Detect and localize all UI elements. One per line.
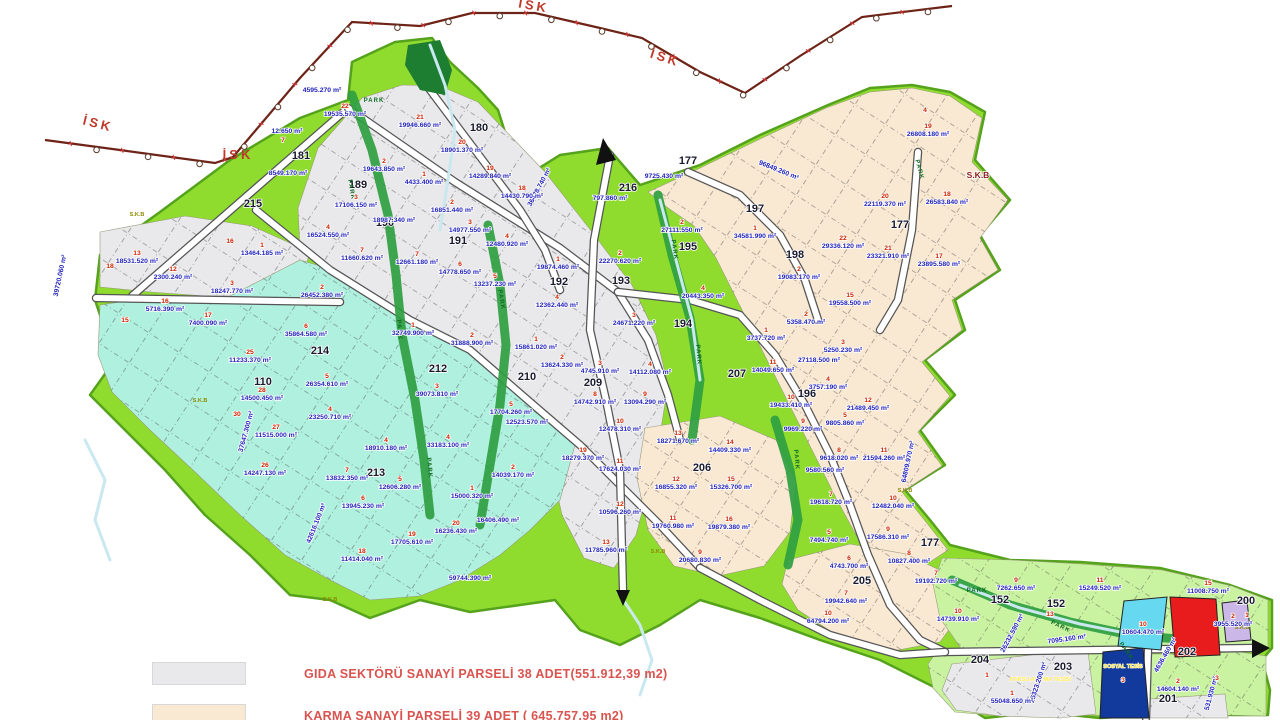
- parcel-number: 2: [680, 219, 684, 226]
- parcel-number: 5: [827, 529, 831, 536]
- parcel-area: 19879.380 m²: [708, 524, 751, 531]
- zone-number-label: 195: [679, 241, 697, 253]
- parcel-number: 1: [1245, 612, 1249, 619]
- zone-number-label: 206: [693, 462, 711, 474]
- parcel-area: 19942.640 m²: [825, 598, 868, 605]
- parcel-number: 1: [753, 225, 757, 232]
- parcel-number: 21: [416, 114, 424, 121]
- isk-tick-o: [784, 65, 790, 71]
- parcel-area: 23321.910 m²: [867, 253, 910, 260]
- parcel-number: 2: [450, 199, 454, 206]
- isk-tick-o: [599, 29, 605, 35]
- edge-measure-label: 4595.270 m²: [303, 87, 342, 94]
- parcel-area: 19433.410 m²: [770, 402, 813, 409]
- zone-number-label: 180: [470, 122, 488, 134]
- zone-number-label: 194: [674, 318, 693, 330]
- parcel-area: 26583.840 m²: [926, 199, 969, 206]
- zone-number-label: 213: [367, 467, 385, 479]
- parcel-area: 14739.910 m²: [937, 616, 980, 623]
- parcel-area: 19192.720 m²: [915, 578, 958, 585]
- parcel-number: 13: [133, 250, 141, 257]
- parcel-number: 13: [1046, 611, 1054, 618]
- parcel-area: 23250.710 m²: [309, 414, 352, 421]
- parcel-area: 16236.430 m²: [435, 528, 478, 535]
- parcel-number: 4: [826, 376, 830, 383]
- skb-small-label: S.K.B: [130, 212, 145, 218]
- parcel-area: 34581.990 m²: [734, 233, 777, 240]
- zoning-map-page: ×××××××××××××××××××İSKİSKİSKİSK181189180…: [0, 0, 1280, 720]
- zone-number-label: 201: [1159, 693, 1177, 705]
- parcel-area: 4743.700 m²: [830, 563, 869, 570]
- parcel-area: 14289.840 m²: [469, 173, 512, 180]
- parcel-area: 18279.370 m²: [562, 455, 605, 462]
- parcel-number: 19: [486, 165, 494, 172]
- parcel-area: 12661.180 m²: [396, 259, 439, 266]
- parcel-number: 2: [618, 250, 622, 257]
- parcel-number: 11: [880, 447, 887, 454]
- parcel-area: 11233.370 m²: [229, 357, 272, 364]
- parcel-area: 19946.660 m²: [399, 122, 442, 129]
- parcel-number: 20: [458, 139, 466, 146]
- parcel-number: 3: [435, 383, 439, 390]
- parcel-number: 2: [804, 311, 808, 318]
- parcel-number: 14: [726, 439, 734, 446]
- parcel-area: 18901.370 m²: [441, 147, 484, 154]
- parcel-number: 2: [1176, 678, 1180, 685]
- parcel-area: 18247.770 m²: [211, 288, 254, 295]
- parcel-number: 11: [1096, 577, 1103, 584]
- parcel-number: 22: [839, 235, 847, 242]
- parcel-number: 30: [233, 411, 241, 418]
- parcel-number: 26: [261, 462, 269, 469]
- parcel-number: 20: [881, 193, 889, 200]
- parcel-area: 10596.260 m²: [599, 509, 642, 516]
- parcel-number: 11: [669, 515, 676, 522]
- parcel-area: 7262.650 m²: [997, 585, 1036, 592]
- zone-number-label: 204: [971, 654, 990, 666]
- parcel-number: 3: [1215, 675, 1219, 682]
- parcel-area: 39073.810 m²: [416, 391, 459, 398]
- parcel-number: 1: [534, 336, 538, 343]
- parcel-area: 19643.850 m²: [363, 166, 406, 173]
- isk-tick-o: [446, 19, 452, 25]
- parcel-area: 17705.610 m²: [391, 539, 434, 546]
- isk-tick-o: [925, 9, 931, 15]
- parcel-area: 3737.720 m²: [747, 335, 786, 342]
- isk-tick-o: [145, 154, 151, 160]
- edge-measure-label: 59744.390 m²: [449, 575, 492, 582]
- parcel-area: 24671.220 m²: [613, 320, 656, 327]
- parcel-area: 4745.910 m²: [581, 368, 620, 375]
- parcel-number: 16: [226, 238, 234, 245]
- isk-label: İSK: [223, 147, 254, 162]
- parcel-area: 12480.920 m²: [486, 241, 529, 248]
- parcel-area: 13832.350 m²: [326, 475, 369, 482]
- isk-tick-o: [549, 17, 555, 23]
- parcel-area: 5250.230 m²: [824, 347, 863, 354]
- parcel-area: 9618.020 m²: [820, 455, 859, 462]
- edge-measure-label: 8549.170 m²: [269, 170, 308, 177]
- parcel-area: 15326.700 m²: [710, 484, 753, 491]
- parcel-number: 16: [161, 298, 169, 305]
- parcel-number: 4: [923, 107, 927, 114]
- zone-number-label: 177: [891, 219, 909, 231]
- zone-number-label: 192: [550, 276, 568, 288]
- parcel-area: 12362.440 m²: [536, 302, 579, 309]
- isk-tick-x: ×: [420, 20, 426, 30]
- skb-small-label: S.K.B: [651, 549, 666, 555]
- zone-number-label: 209: [584, 377, 602, 389]
- parcel-area: 14409.330 m²: [709, 447, 752, 454]
- isk-tick-o: [740, 92, 746, 98]
- parcel-area: 21489.450 m²: [847, 405, 890, 412]
- isk-tick-o: [874, 15, 880, 21]
- parcel-area: 19558.500 m²: [829, 300, 872, 307]
- parcel-area: 17704.260 m²: [490, 409, 533, 416]
- parcel-area: 32749.900 m²: [392, 330, 435, 337]
- stream: [85, 440, 110, 560]
- parcel-number: 11: [616, 458, 623, 465]
- park-label: PARK: [364, 98, 385, 104]
- zone-number-label: 207: [728, 368, 746, 380]
- parcel-area: 23895.580 m²: [918, 261, 961, 268]
- parcel-number: 4: [555, 294, 559, 301]
- parcel-number: 19: [579, 447, 587, 454]
- parcel-area: 33183.100 m²: [427, 442, 470, 449]
- parcel-number: 9: [698, 549, 702, 556]
- parcel-area: 11008.750 m²: [1187, 588, 1230, 595]
- parcel-area: 14778.650 m²: [439, 269, 482, 276]
- parcel-number: 7: [415, 251, 419, 258]
- parcel-number: 22: [341, 103, 349, 110]
- parcel-number: 1: [764, 327, 768, 334]
- parcel-area: 13624.330 m²: [541, 362, 584, 369]
- parcel-number: 4: [701, 285, 705, 292]
- parcel-area: 14500.450 m²: [241, 395, 284, 402]
- isk-tick-o: [395, 25, 401, 31]
- parcel-area: 19874.460 m²: [537, 264, 580, 271]
- parcel-number: 18: [358, 548, 366, 555]
- parcel-number: 3: [632, 312, 636, 319]
- parcel-number: 10: [889, 495, 897, 502]
- zone-number-label: 200: [1237, 595, 1255, 607]
- parcel-area: 7494.740 m²: [810, 537, 849, 544]
- parcel-number: 19: [408, 531, 416, 538]
- parcel-area: 14112.080 m²: [629, 369, 672, 376]
- parcel-area: 18271.670 m²: [657, 438, 700, 445]
- parcel-number: 15: [727, 476, 735, 483]
- isk-tick-o: [497, 13, 503, 19]
- parcel-area: 4433.400 m²: [405, 179, 444, 186]
- park-label: PARK: [967, 588, 988, 594]
- parcel-number: 8: [907, 550, 911, 557]
- parcel-area: 13464.185 m²: [241, 250, 284, 257]
- parcel-number: 6: [847, 555, 851, 562]
- parcel-number: 6: [361, 495, 365, 502]
- parcel-number: 7: [934, 570, 938, 577]
- parcel-number: 17: [935, 253, 943, 260]
- zone-number-label: 210: [518, 371, 536, 383]
- parcel-number: 10: [954, 608, 962, 615]
- parcel-number: 7: [360, 247, 364, 254]
- skb-small-label: S.K.B: [323, 597, 338, 603]
- parcel-area: 11414.040 m²: [341, 556, 384, 563]
- parcel-area: 14039.170 m²: [492, 472, 535, 479]
- isk-tick-x: ×: [761, 74, 769, 85]
- parcel-area: 14977.550 m²: [449, 227, 492, 234]
- parcel-area: 19535.570 m²: [324, 111, 367, 118]
- parcel-number: 2: [797, 266, 801, 273]
- zone-number-label: 212: [429, 363, 447, 375]
- parcel-area: 22270.620 m²: [599, 258, 642, 265]
- zone-number-label: 181: [292, 150, 310, 162]
- parcel-number: 18: [943, 191, 951, 198]
- isk-tick-x: ×: [804, 45, 812, 56]
- zoning-map-canvas: ×××××××××××××××××××İSKİSKİSKİSK181189180…: [0, 0, 1280, 720]
- parcel-area: 12482.040 m²: [872, 503, 915, 510]
- zone-number-label: 197: [746, 203, 764, 215]
- parcel-area: 14430.790 m²: [501, 193, 544, 200]
- parcel-number: 5: [325, 373, 329, 380]
- skb-small-label: S.K.B: [193, 398, 208, 404]
- parcel-area: 9805.860 m²: [826, 420, 865, 427]
- parcel-area: 3955.520 m²: [1214, 621, 1253, 628]
- parcel-number: 3: [841, 339, 845, 346]
- parcel-number: 3: [468, 219, 472, 226]
- parcel-area: 14604.140 m²: [1157, 686, 1200, 693]
- isk-tick-o: [197, 161, 203, 167]
- parcel-number: 11: [769, 359, 776, 366]
- parcel-number: 12: [616, 501, 624, 508]
- parcel-number: 6: [304, 323, 308, 330]
- isk-tick-o: [693, 70, 699, 76]
- parcel-area: 15000.320 m²: [451, 493, 494, 500]
- zone-number-label: 198: [786, 249, 804, 261]
- parcel-number: 4: [328, 406, 332, 413]
- parcel-number: 9: [643, 391, 647, 398]
- parcel-number: 1: [411, 322, 415, 329]
- parcel-area: 18987.340 m²: [373, 217, 416, 224]
- parcel-number: 1: [260, 242, 264, 249]
- parcel-number: 7: [345, 467, 349, 474]
- parcel-area: 13945.230 m²: [342, 503, 385, 510]
- parcel-area: 17586.310 m²: [867, 534, 910, 541]
- parcel-area: 13237.230 m²: [474, 281, 517, 288]
- parcel-area: 14049.650 m²: [752, 367, 795, 374]
- parcel-number: 4: [648, 361, 652, 368]
- parcel-area: 2300.240 m²: [154, 274, 193, 281]
- parcel-area: 12523.570 m²: [506, 419, 549, 426]
- parcel-area: 26354.610 m²: [306, 381, 349, 388]
- parcel-number: 4: [326, 224, 330, 231]
- zone-number-label: 152: [1047, 598, 1065, 610]
- isk-tick-x: ×: [848, 18, 856, 29]
- parcel-number: 12: [169, 266, 177, 273]
- parcel-area: 20443.350 m²: [682, 293, 725, 300]
- parcel-number: 28: [258, 387, 266, 394]
- parcel-number: 1: [1010, 690, 1014, 697]
- parcel-area: 35864.580 m²: [285, 331, 328, 338]
- parcel-number: 2: [560, 354, 564, 361]
- skb-label: S.K.B: [967, 170, 990, 180]
- parcel-area: 14247.130 m²: [244, 470, 287, 477]
- edge-measure-label: 39720.060 m²: [53, 254, 69, 298]
- skb-small-label: S.K.B: [898, 488, 913, 494]
- special-facility-label: SOSYAL TESİS: [1103, 663, 1143, 670]
- parcel-area: 22119.370 m²: [864, 201, 907, 208]
- parcel-area: 5716.390 m²: [146, 306, 185, 313]
- parcel-number: 16: [725, 516, 733, 523]
- parcel-area: 27118.500 m²: [798, 357, 841, 364]
- isk-label: İSK: [648, 46, 682, 70]
- parcel-number: 17: [204, 312, 212, 319]
- parcel-number: 19: [924, 123, 932, 130]
- parcel-area: 9580.560 m²: [806, 467, 845, 474]
- parcel-area: 14742.910 m²: [574, 399, 617, 406]
- zone-number-label: 214: [311, 345, 330, 357]
- parcel-number: 2: [320, 284, 324, 291]
- parcel-number: 10: [1139, 621, 1147, 628]
- parcel-number: 25: [246, 349, 254, 356]
- isk-tick-x: ×: [714, 76, 725, 87]
- parcel-area: 9969.220 m²: [784, 426, 823, 433]
- parcel-number: 10: [616, 418, 624, 425]
- parcel-number: 5: [493, 273, 497, 280]
- parcel-area: 17624.030 m²: [599, 466, 642, 473]
- zone-number-label: 193: [612, 275, 630, 287]
- parcel-number: 12: [672, 476, 680, 483]
- zone-number-label: 191: [449, 235, 467, 247]
- parcel-area: 7400.090 m²: [189, 320, 228, 327]
- isk-tick-o: [309, 65, 315, 71]
- parcel-number: 18: [518, 185, 526, 192]
- parcel-number: 4: [384, 437, 388, 444]
- isk-tick-o: [94, 147, 100, 153]
- parcel-number: 9: [886, 526, 890, 533]
- parcel-area: 15249.520 m²: [1079, 585, 1122, 592]
- zone-number-label: 203: [1054, 661, 1072, 673]
- parcel-area: 12478.310 m²: [599, 426, 642, 433]
- parcel-number: 4: [505, 233, 509, 240]
- parcel-number: 15: [1204, 580, 1212, 587]
- parcel-area: 16855.320 m²: [655, 484, 698, 491]
- isk-label: İSK: [81, 113, 114, 135]
- edge-measure-label: 12.650 m²: [272, 128, 304, 135]
- parcel-area: 15861.020 m²: [515, 344, 558, 351]
- isk-tick-o: [275, 104, 281, 110]
- parcel-number: 13: [602, 539, 610, 546]
- parcel-number: 21: [884, 245, 892, 252]
- parcel-area: 5358.470 m²: [787, 319, 826, 326]
- edge-measure-label: 797.860 m²: [593, 195, 629, 202]
- parcel-area: 10827.400 m²: [888, 558, 931, 565]
- parcel-number: 3: [354, 194, 358, 201]
- parcel-number: 9: [1014, 577, 1018, 584]
- parcel-number: 7: [829, 491, 833, 498]
- parcel-area: 9725.430 m²: [645, 173, 684, 180]
- parcel-number: 12: [864, 397, 872, 404]
- parcel-area: 19618.720 m²: [810, 499, 853, 506]
- parcel-area: 16406.490 m²: [477, 517, 520, 524]
- parcel-number: 1: [422, 171, 426, 178]
- parcel-number: 10: [787, 394, 795, 401]
- parcel-area: 10604.470 m²: [1122, 629, 1165, 636]
- parcel-number: 27: [272, 424, 280, 431]
- parcel-number: 1: [985, 672, 989, 679]
- parcel-area: 17106.150 m²: [335, 202, 378, 209]
- parcel-number: 15: [846, 292, 854, 299]
- parcel-area: 16524.550 m²: [307, 232, 350, 239]
- isk-tick-o: [827, 37, 833, 43]
- parcel-area: 20680.830 m²: [679, 557, 722, 564]
- parcel-number: 7: [844, 590, 848, 597]
- zone-number-label: 152: [991, 594, 1009, 606]
- parcel-area: 26452.380 m²: [301, 292, 344, 299]
- parcel-number: 15: [121, 317, 129, 324]
- parcel-area: 18531.520 m²: [116, 258, 159, 265]
- parcel-area: 19083.170 m²: [778, 274, 821, 281]
- parcel-area: 11660.620 m²: [341, 255, 384, 262]
- parcel-number: 1: [556, 256, 560, 263]
- parcel-area: 11515.000 m²: [255, 432, 298, 439]
- zone-number-label: 216: [619, 182, 637, 194]
- parcel-area: 21594.260 m²: [863, 455, 906, 462]
- parcel-number: 3: [598, 360, 602, 367]
- parcel-area: 29336.120 m²: [822, 243, 865, 250]
- parcel-number: 20: [452, 520, 460, 527]
- parcel-number: 3: [1121, 677, 1125, 684]
- parcel-number: 1: [470, 485, 474, 492]
- isk-tick-o: [345, 27, 351, 33]
- isk-tick-x: ×: [899, 7, 906, 18]
- parcel-area: 11785.960 m²: [585, 547, 628, 554]
- parcel-number: 6: [458, 261, 462, 268]
- parcel-number: 5: [509, 401, 513, 408]
- parcel-area: 13094.290 m²: [624, 399, 667, 406]
- parcel-area: 16851.440 m²: [431, 207, 474, 214]
- parcel-number: 5: [398, 476, 402, 483]
- parcel-number: 3: [230, 280, 234, 287]
- zone-number-label: 215: [244, 198, 262, 210]
- parcel-area: 18910.180 m²: [365, 445, 408, 452]
- parcel-number: 8: [593, 391, 597, 398]
- parcel-area: 64794.200 m²: [807, 618, 850, 625]
- parcel-area: 27111.550 m²: [661, 227, 703, 234]
- zone-number-label: 177: [921, 537, 939, 549]
- zone-number-label: 177: [679, 155, 697, 167]
- zone-number-label: 205: [853, 575, 871, 587]
- parcel-number: 4: [446, 434, 450, 441]
- parcel-area: 3757.190 m²: [809, 384, 848, 391]
- zone-number-label: 202: [1178, 646, 1196, 658]
- parcel-number: 10: [824, 610, 832, 617]
- parcel-number: 8: [837, 447, 841, 454]
- parcel-number: 13: [674, 430, 682, 437]
- parcel-area: 55048.650 m²: [991, 698, 1034, 705]
- parcel-number: 2: [382, 158, 386, 165]
- parcel-area: 26808.180 m²: [907, 131, 950, 138]
- parcel-area: 19760.980 m²: [652, 523, 695, 530]
- parcel-number: 2: [470, 332, 474, 339]
- parcel-number: 2: [1231, 613, 1235, 620]
- parcel-number: 18: [106, 263, 114, 270]
- parcel-area: 31888.900 m²: [451, 340, 494, 347]
- parcel-number: 7: [281, 137, 285, 144]
- parcel-area: 12606.280 m²: [379, 484, 422, 491]
- parcel-number: 9: [801, 418, 805, 425]
- parcel-number: 5: [843, 412, 847, 419]
- parcel-number: 2: [511, 464, 515, 471]
